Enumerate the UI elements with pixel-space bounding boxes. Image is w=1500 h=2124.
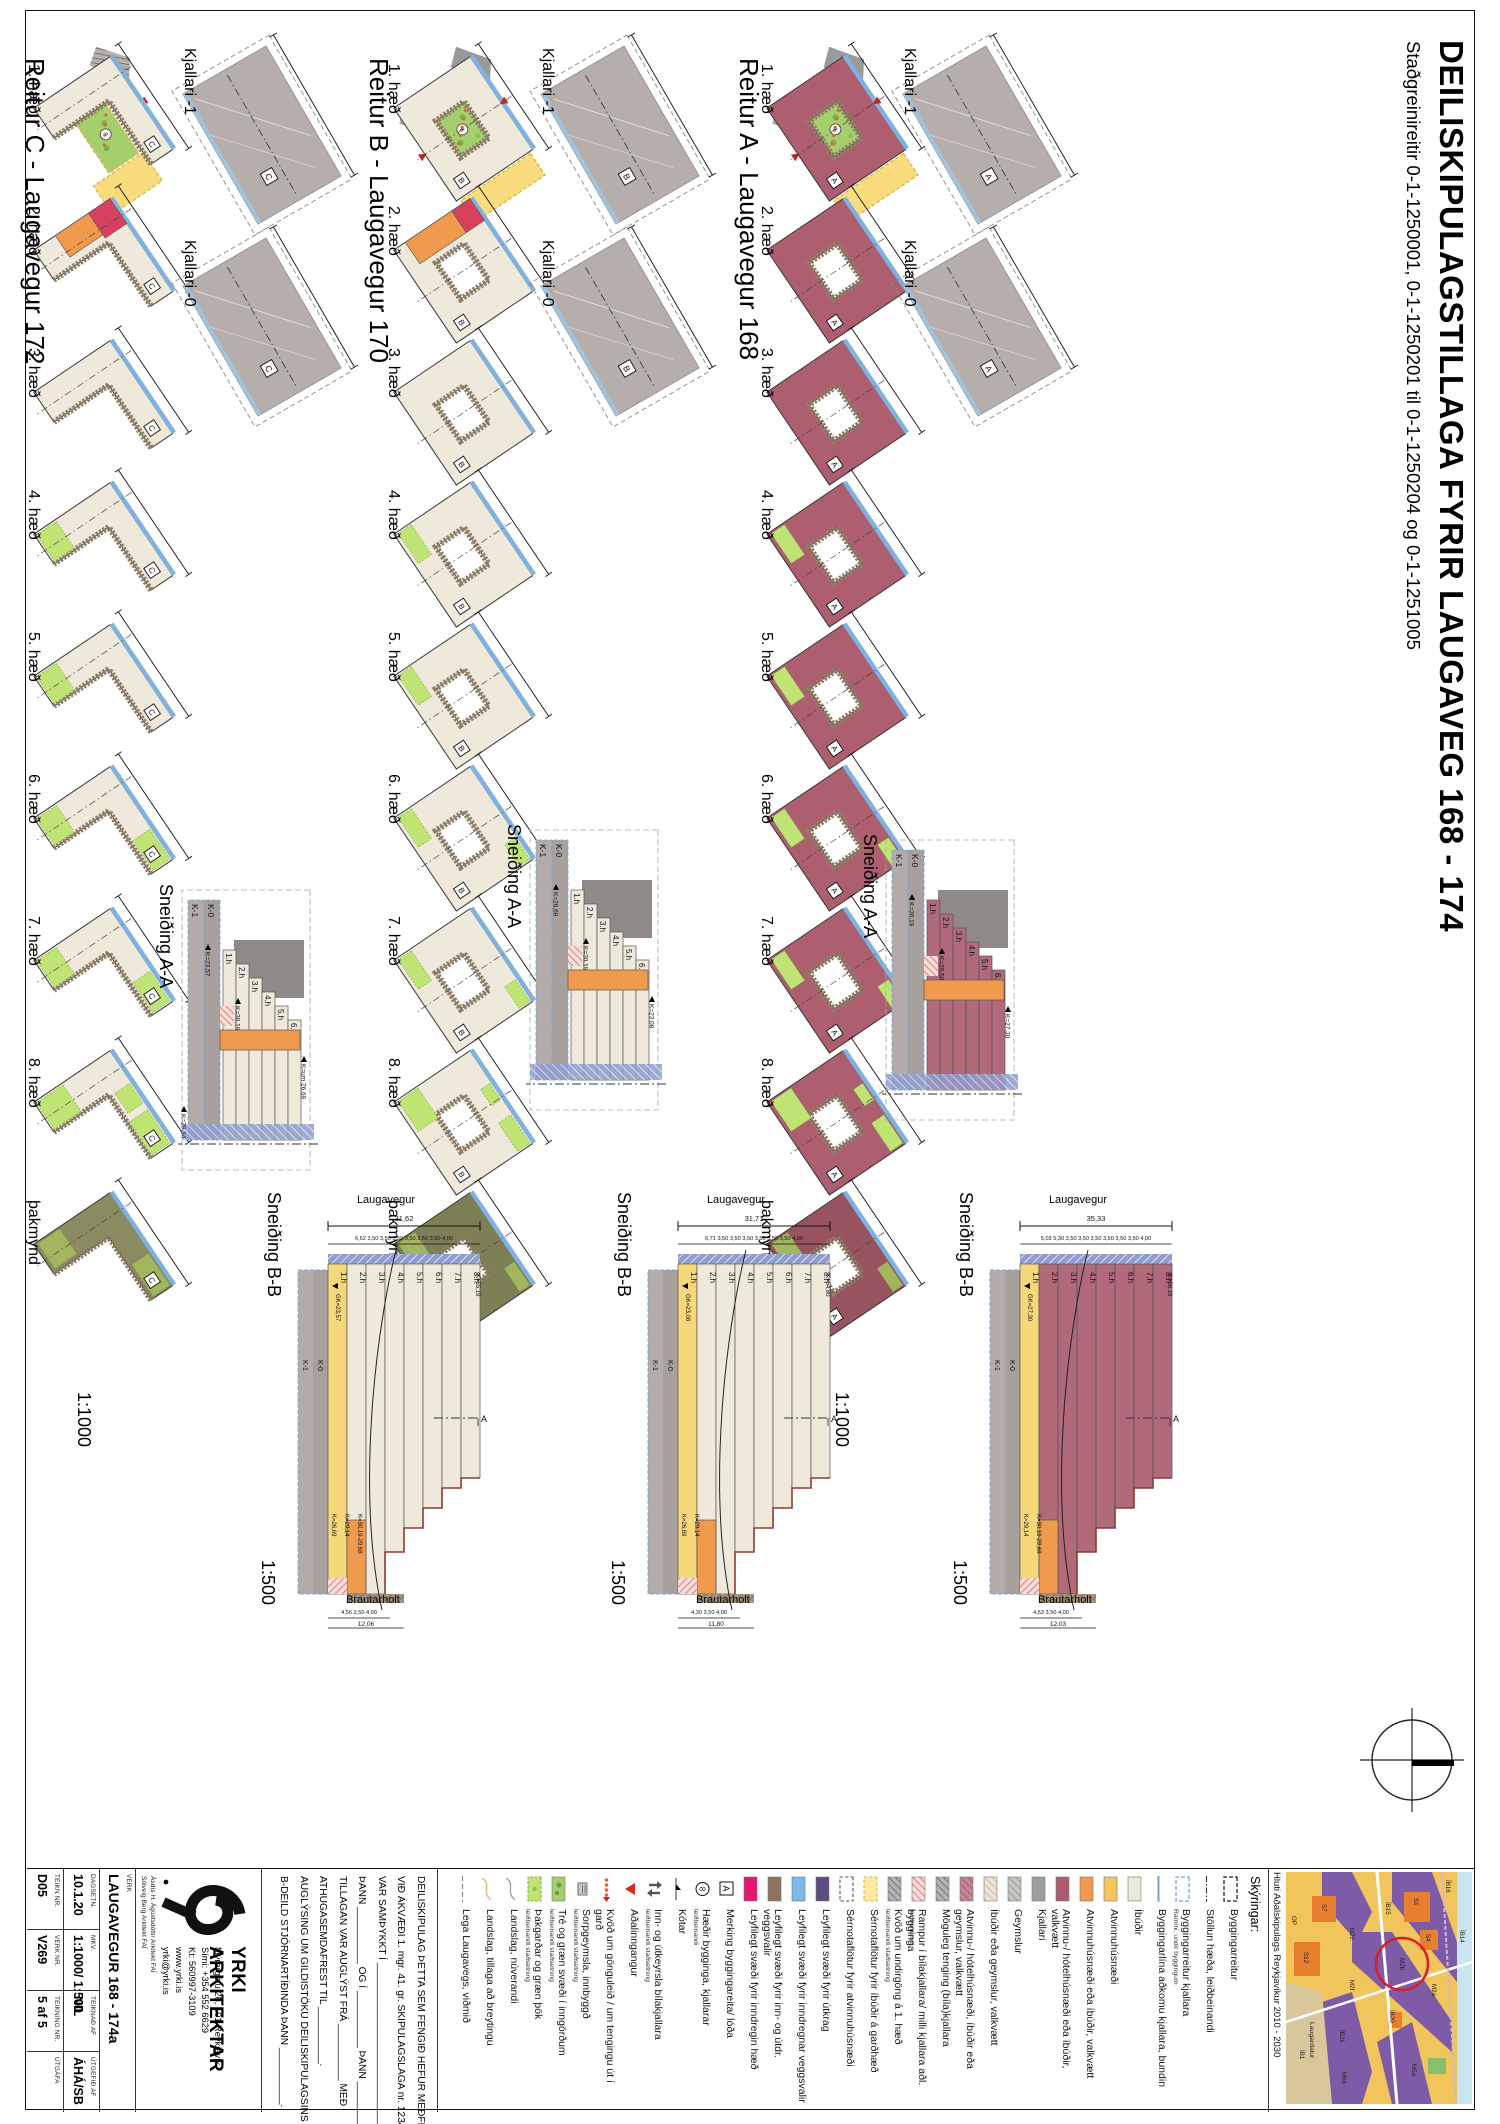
- legend-swatch: [767, 1876, 782, 1902]
- titleblock-divider: [27, 1868, 1475, 1869]
- svg-text:K=um 26,69: K=um 26,69: [300, 1064, 307, 1100]
- plan-label: 6. hæð: [757, 774, 775, 918]
- legend-sublabel: leiðbeinandi staðsetning: [644, 1909, 651, 1982]
- legend-swatch: [1079, 1876, 1094, 1902]
- section-aa: 1.h 2.h 3.h 4.h 5.h 6.h K-1 K-0 K=um 26,…: [155, 880, 334, 1180]
- svg-text:31,71: 31,71: [745, 1214, 764, 1223]
- svg-text:K-0: K-0: [316, 1360, 323, 1371]
- svg-text:K-0: K-0: [206, 904, 216, 918]
- plan-thumbnail: B 3. hæð: [384, 342, 542, 492]
- svg-text:K=26,69: K=26,69: [680, 1514, 686, 1537]
- legend-item: Leyfilegt svæði fyrir inndregin hæð: [737, 1876, 760, 2106]
- svg-text:6,62 3,50 3,50 3,50 3,50: 6,62 3,50 3,50 3,50 3,50 3,50 3,50 4,00: [355, 1236, 453, 1242]
- legend-heading: Skýringar:: [1248, 1876, 1262, 1932]
- plan-thumbnail: B 5. hæð: [384, 626, 542, 776]
- legend-label: Kvöð um undirgöng á 1. hæð: [892, 1909, 903, 2105]
- plan-label: þakmynd: [24, 1200, 42, 1344]
- legend-label: Atvinnu-/ hótelhúsnæði, íbúðir eða geyms…: [953, 1909, 975, 2105]
- svg-text:6,71 3,50 3,50 3,50 3,50: 6,71 3,50 3,50 3,50 3,50 3,50 3,50 4,00: [705, 1236, 803, 1242]
- section-label: Sneiðing B-B: [613, 1192, 634, 1297]
- svg-text:K=26,69: K=26,69: [330, 1514, 336, 1537]
- svg-text:K=30,19: K=30,19: [908, 902, 915, 927]
- legend-item: Kvöð um undirgöng á 1. hæð leiðbeinandi …: [881, 1876, 904, 2106]
- kjallari-thumbnail: B Kjallari -0: [538, 232, 690, 422]
- legend-label: Byggingarlína aðkomu kjallara, bundin: [1156, 1909, 1167, 2105]
- scale-label: 1:500: [607, 1560, 628, 1605]
- legend-label: Kótar: [676, 1909, 687, 2105]
- svg-text:1.h: 1.h: [928, 903, 937, 914]
- legend-item: Leyfilegt svæði fyrir inn- og útdr. vegg…: [761, 1876, 784, 2106]
- field-label: TEIKN NR.: [53, 1874, 60, 1907]
- legend-sublabel: leiðbeinandi staðsetning: [524, 1909, 531, 1982]
- svg-text:K=27,30: K=27,30: [1004, 1014, 1011, 1039]
- svg-text:K=30,19-29,68: K=30,19-29,68: [356, 1514, 362, 1554]
- svg-text:K=26,69: K=26,69: [552, 892, 559, 917]
- legend-label: Atvinnuhúsnæði eða íbúðir, valkvætt: [1084, 1909, 1095, 2105]
- svg-text:8: 8: [698, 1887, 707, 1892]
- legend-item: Byggingarreitur: [1217, 1876, 1240, 2106]
- legend-label: Leyfilegt svæði fyrir inndregnar veggsva…: [796, 1909, 807, 2105]
- street-label: Laugavegur: [636, 1194, 836, 1206]
- legend-item: Atvinnu-/ hótelhúsnæði eða íbúðir, valkv…: [1049, 1876, 1072, 2106]
- svg-text:S4: S4: [1424, 1934, 1431, 1942]
- plan-label: 3. hæð: [24, 348, 42, 492]
- section-aa: 1.h 2.h 3.h 4.h 5.h 6.h K-1 K-0 K=23,08 …: [503, 820, 682, 1120]
- svg-text:K=30,19: K=30,19: [234, 1006, 241, 1031]
- plan-label: 3. hæð: [384, 348, 402, 492]
- legend-item: Stöllun hæða, leiðbeinandi: [1193, 1876, 1216, 2106]
- legend-swatch: [623, 1876, 638, 1902]
- field-value: D05: [35, 1874, 49, 1897]
- legend-swatch: [1055, 1876, 1070, 1902]
- legend-swatch: [959, 1876, 974, 1902]
- section-bb: Laugavegur 35,33 5,03 5,30 3,50 3,50 3,5…: [978, 1190, 1178, 1630]
- approval-line: TILLAGAN VAR AUGLÝST FRÁ __________ MEÐ: [332, 1876, 352, 2106]
- scale-label: 1:1000: [73, 1392, 94, 1447]
- section-bb: Laugavegur 31,62 6,62 3,50 3,50 3,50 3,5…: [286, 1190, 486, 1630]
- svg-text:1.h: 1.h: [224, 953, 233, 964]
- plan-label: 8. hæð: [384, 1058, 402, 1202]
- legend-label: Tré og græn svæði í inngörðum: [556, 1909, 567, 2105]
- plan-label: 1. hæð: [757, 64, 775, 208]
- firm-logo: [158, 1874, 254, 1938]
- plan-label: 4. hæð: [384, 490, 402, 634]
- approval-line: VAR SAMÞYKKT Í _________________________…: [371, 1876, 391, 2124]
- legend-swatch: [647, 1876, 662, 1902]
- field-label: ÚTGÁFA: [53, 2057, 60, 2084]
- plan-label: 7. hæð: [24, 916, 42, 1060]
- plan-label: 6. hæð: [24, 774, 42, 918]
- street-label: Laugavegur: [286, 1194, 486, 1206]
- field-value: 5 af 5: [35, 1996, 49, 2028]
- svg-text:A: A: [721, 1885, 731, 1891]
- svg-text:K=54,80: K=54,80: [824, 1274, 830, 1297]
- section-label: Sneiðing A-A: [503, 824, 524, 1120]
- svg-text:GK=23,08: GK=23,08: [684, 1294, 690, 1322]
- svg-text:S1: S1: [1412, 1898, 1419, 1906]
- legend-item: Íbúðir eða geymslur, valkvætt: [977, 1876, 1000, 2106]
- svg-text:K=30,19-29,68: K=30,19-29,68: [1035, 1514, 1041, 1554]
- svg-text:OP: OP: [1290, 1916, 1297, 1925]
- field-label: TEIKNAÐ AF: [89, 1996, 96, 2035]
- firm-web: www.yrki.is: [172, 1947, 185, 1993]
- svg-text:3.h: 3.h: [954, 931, 963, 942]
- legend-swatch: [575, 1876, 590, 1902]
- street-label: Brautarholt: [1038, 1594, 1092, 1606]
- legend-swatch: [1151, 1876, 1166, 1902]
- plan-thumbnail: A 4. hæð: [757, 484, 915, 634]
- svg-text:2.h: 2.h: [237, 967, 246, 978]
- plan-label: Kjallari -0: [180, 240, 198, 422]
- field-label: DAGSETN.: [89, 1874, 96, 1908]
- svg-text:31,62: 31,62: [395, 1214, 414, 1223]
- legend-label: Landslag, núverandi: [508, 1909, 519, 2105]
- section-label: Sneiðing B-B: [263, 1192, 284, 1297]
- svg-text:K=55,19: K=55,19: [474, 1274, 480, 1297]
- plan-thumbnail: 8 A 1. hæð: [757, 58, 915, 208]
- legend-item: Byggingarlína aðkomu kjallara, bundin: [1145, 1876, 1168, 2106]
- plan-label: 8. hæð: [24, 1058, 42, 1202]
- legend-swatch: [671, 1876, 686, 1902]
- kjallari-thumbnail: C Kjallari -1: [180, 40, 332, 230]
- legend-swatch: [455, 1876, 470, 1902]
- plan-thumbnail: B 2. hæð: [384, 200, 542, 350]
- field-value: ÁHÁ/SB: [71, 2057, 85, 2105]
- legend-sublabel: leiðbeinandi staðsetning: [572, 1909, 579, 1982]
- legend-swatch: [503, 1876, 518, 1902]
- field-label: VERK NR.: [53, 1935, 60, 1967]
- svg-text:K=29,50: K=29,50: [938, 956, 945, 981]
- legend-item: Þakgarðar og græn þök leiðbeinandi staðs…: [521, 1876, 544, 2106]
- field-label: ÚTGEFIÐ AF: [89, 2057, 96, 2097]
- kjallari-thumbnail: C Kjallari -0: [180, 232, 332, 422]
- legend-item: Atvinnu-/ hótelhúsnæði, íbúðir eða geyms…: [953, 1876, 976, 2106]
- legend-sublabel: leiðbeinandi: [908, 1909, 915, 1945]
- plan-label: 7. hæð: [757, 916, 775, 1060]
- svg-text:K-1: K-1: [301, 1360, 308, 1371]
- legend-item: Sérnotaflötur fyrir atvinnuhúsnæði: [833, 1876, 856, 2106]
- legend-swatch: A: [719, 1876, 734, 1902]
- svg-text:K=23,08: K=23,08: [648, 1004, 655, 1029]
- legend-item: Byggingarreitur kjallara Rammi, undir by…: [1169, 1876, 1192, 2106]
- legend-label: Atvinnu-/ hótelhúsnæði eða íbúðir, valkv…: [1049, 1909, 1071, 2105]
- field-label: MKV.: [89, 1935, 96, 1951]
- legend-label: Möguleg tenging (bíla)kjallara: [940, 1909, 951, 2105]
- approval-line: ATHUGASEMDAFREST TIL __________.: [313, 1876, 333, 2066]
- svg-text:K=23,57: K=23,57: [204, 952, 211, 977]
- svg-text:M2c: M2c: [1348, 1928, 1355, 1940]
- legend-swatch: [1175, 1876, 1190, 1902]
- legend-label: Lega Laugavegs, viðmið: [460, 1909, 471, 2105]
- legend-item: Atvinnuhúsnæði: [1097, 1876, 1120, 2106]
- svg-text:M6b: M6b: [1340, 2072, 1347, 2085]
- svg-text:5,03 5,30 3,50 3,50 3,50: 5,03 5,30 3,50 3,50 3,50 3,50 3,50 3,50 …: [1041, 1236, 1151, 1242]
- legend-swatch: [527, 1876, 542, 1902]
- svg-text:5.h: 5.h: [980, 959, 989, 970]
- plan-label: 4. hæð: [757, 490, 775, 634]
- svg-text:M2a: M2a: [1430, 1984, 1437, 1997]
- plan-thumbnail: C 4. hæð: [24, 484, 182, 634]
- legend-item: Landslag, núverandi: [497, 1876, 520, 2106]
- plan-label: Kjallari -1: [900, 48, 918, 230]
- legend-item: Inn- og útkeyrsla bílakjallara leiðbeina…: [641, 1876, 664, 2106]
- legend-label: Íbúðir: [1132, 1909, 1143, 2105]
- plan-label: 2. hæð: [384, 206, 402, 350]
- legend-swatch: [551, 1876, 566, 1902]
- field-label: VERK: [125, 1874, 132, 1892]
- approval-line: ÞANN __________ OG Í __________ ÞANN ___…: [352, 1876, 372, 2124]
- svg-text:5.h: 5.h: [276, 1009, 285, 1020]
- legend-swatch: [839, 1876, 854, 1902]
- svg-text:3.h: 3.h: [598, 921, 607, 932]
- svg-text:K-1: K-1: [894, 854, 904, 868]
- svg-text:K-0: K-0: [1008, 1360, 1015, 1371]
- svg-text:K=29,14: K=29,14: [180, 1114, 187, 1139]
- svg-text:ÍB16: ÍB16: [1444, 1880, 1451, 1893]
- svg-text:4,53 3,50 4,00: 4,53 3,50 4,00: [1033, 1610, 1069, 1616]
- legend-swatch: [479, 1876, 494, 1902]
- plan-label: 5. hæð: [24, 632, 42, 776]
- approval-line: AUGLÝSING UM GILDISTÖKU DEILISKIPULAGSIN…: [293, 1876, 313, 2124]
- section-bb: Laugavegur 31,71 6,71 3,50 3,50 3,50 3,5…: [636, 1190, 836, 1630]
- legend-label: Leyfilegt svæði fyrir inndregin hæð: [748, 1909, 759, 2105]
- svg-text:K=29,14: K=29,14: [693, 1514, 699, 1537]
- legend-swatch: [1103, 1876, 1118, 1902]
- plan-thumbnail: B 4. hæð: [384, 484, 542, 634]
- legend-label: Sérnotaflötur fyrir atvinnuhúsnæði: [844, 1909, 855, 2105]
- svg-text:K=29,14: K=29,14: [1022, 1514, 1028, 1537]
- legend-swatch: [887, 1876, 902, 1902]
- svg-text:2.h: 2.h: [941, 917, 950, 928]
- svg-text:A: A: [481, 1414, 487, 1424]
- legend-swatch: [1127, 1876, 1142, 1902]
- approval-line: DEILISKIPULAG ÞETTA SEM FENGIÐ HEFUR MEÐ…: [410, 1876, 430, 2124]
- legend-item: Atvinnuhúsnæði eða íbúðir, valkvætt: [1073, 1876, 1096, 2106]
- plan-label: 7. hæð: [384, 916, 402, 1060]
- firm-email: yrki@yrki.is: [159, 1947, 172, 1995]
- page-subtitle: Staðgreinireitir 0-1-1250001, 0-1-125020…: [1402, 41, 1424, 650]
- legend-swatch: [1007, 1876, 1022, 1902]
- svg-text:4,56 3,50 4,00: 4,56 3,50 4,00: [341, 1610, 377, 1616]
- svg-text:K-1: K-1: [190, 904, 200, 918]
- svg-text:A: A: [1173, 1414, 1179, 1424]
- legend-label: Leyfilegt svæði fyrir inn- og útdr. vegg…: [761, 1909, 783, 2105]
- legend-sublabel: leiðbeinandi: [692, 1909, 699, 1945]
- firm-architect: Ásdís H. Ágústsdóttir Arkitekt FAÍ: [149, 1876, 156, 1973]
- section-label: Sneiðing A-A: [155, 884, 176, 1180]
- legend-label: Inn- og útkeyrsla bílakjallara: [652, 1909, 663, 2105]
- svg-text:ÍB21: ÍB21: [1338, 2030, 1345, 2043]
- legend-swatch: [815, 1876, 830, 1902]
- field-value: V269: [35, 1935, 49, 1964]
- plan-thumbnail: C 3. hæð: [24, 342, 182, 492]
- svg-text:4.h: 4.h: [611, 935, 620, 946]
- legend-item: Sorpgeymsla, innbyggð leiðbeinandi staðs…: [569, 1876, 592, 2106]
- kjallari-thumbnail: B Kjallari -1: [538, 40, 690, 230]
- svg-text:ÍB20: ÍB20: [1388, 2010, 1395, 2023]
- legend-item: Rampur í bílakjallara/ milli kjallara að…: [905, 1876, 928, 2106]
- svg-text:GK=23,57: GK=23,57: [334, 1294, 340, 1322]
- svg-text:M2b: M2b: [1398, 1958, 1405, 1971]
- legend-item: 8 Hæðir bygginga, kjallarar leiðbeinandi: [689, 1876, 712, 2106]
- svg-text:K=29,14: K=29,14: [343, 1514, 349, 1537]
- field-value: 10.1.20: [71, 1874, 85, 1916]
- svg-text:M5a: M5a: [1410, 2064, 1417, 2077]
- north-arrow-icon: [1360, 1705, 1470, 1815]
- legend-item: Aðalinngangur: [617, 1876, 640, 2106]
- plan-thumbnail: A 3. hæð: [757, 342, 915, 492]
- plan-label: Kjallari -0: [538, 240, 556, 422]
- legend-item: Kótar: [665, 1876, 688, 2106]
- svg-text:K-1: K-1: [538, 844, 548, 858]
- plan-label: 4. hæð: [24, 490, 42, 634]
- legend-label: Merking byggingareita/ lóða: [724, 1909, 735, 2105]
- legend-item: Möguleg tenging (bíla)kjallara: [929, 1876, 952, 2106]
- firm-phone: Sími: +354 552 6629: [198, 1947, 211, 2033]
- plan-label: Kjallari -1: [538, 48, 556, 230]
- legend-sublabel: leiðbeinandi staðsetning: [884, 1909, 891, 1982]
- svg-text:4,30 3,50 4,00: 4,30 3,50 4,00: [691, 1610, 727, 1616]
- firm-architect: Sólveig Berg Arkitekt FAÍ: [140, 1876, 147, 1949]
- plan-thumbnail: 8 C 1. hæð: [24, 58, 182, 208]
- svg-text:GK=27,30: GK=27,30: [1026, 1294, 1032, 1322]
- legend-label: Kvöð um gönguleið / um tengingu út í gar…: [593, 1909, 615, 2105]
- plan-label: 1. hæð: [384, 64, 402, 208]
- map-caption: Hluti Aðalskipulags Reykjavíkur 2010 - 2…: [1271, 1872, 1282, 2057]
- svg-text:K=56,19: K=56,19: [1166, 1274, 1172, 1297]
- svg-text:Laugardalur: Laugardalur: [1308, 2022, 1315, 2059]
- section-label: Sneiðing A-A: [859, 834, 880, 1130]
- legend-item: A Merking byggingareita/ lóða: [713, 1876, 736, 2106]
- svg-text:A: A: [831, 1414, 837, 1424]
- plan-label: Kjallari -1: [180, 48, 198, 230]
- plan-label: 6. hæð: [384, 774, 402, 918]
- kjallari-thumbnail: A Kjallari -1: [900, 40, 1052, 230]
- legend-item: Sérnotaflötur fyrir íbúðir á garðhæð: [857, 1876, 880, 2106]
- legend-label: Atvinnuhúsnæði: [1108, 1909, 1119, 2105]
- legend-label: Byggingarreitur kjallara: [1180, 1909, 1191, 2105]
- svg-text:11,80: 11,80: [708, 1621, 724, 1628]
- svg-text:4.h: 4.h: [263, 995, 272, 1006]
- svg-text:K-1: K-1: [651, 1360, 658, 1371]
- svg-text:1.h: 1.h: [572, 893, 581, 904]
- legend-label: Stöllun hæða, leiðbeinandi: [1204, 1909, 1215, 2105]
- svg-text:5.h: 5.h: [624, 949, 633, 960]
- legend-swatch: [911, 1876, 926, 1902]
- field-label: TEIKNING NR.: [53, 1996, 60, 2041]
- legend-item: Kvöð um gönguleið / um tengingu út í gar…: [593, 1876, 616, 2106]
- legend-swatch: [791, 1876, 806, 1902]
- plan-label: 2. hæð: [757, 206, 775, 350]
- legend-label: Geymslur: [1012, 1909, 1023, 2105]
- plan-label: 5. hæð: [384, 632, 402, 776]
- legend-label: Sorpgeymsla, innbyggð: [580, 1909, 591, 2105]
- plan-thumbnail: A 5. hæð: [757, 626, 915, 776]
- firm-kt: Kt: 560997-3109: [185, 1947, 198, 2016]
- plan-thumbnail: C þakmynd: [24, 1194, 182, 1344]
- street-label: Brautarholt: [696, 1594, 750, 1606]
- legend-item: Landslag, tillaga að breytingu: [473, 1876, 496, 2106]
- legend-label: Hæðir bygginga, kjallarar: [700, 1909, 711, 2105]
- legend-label: Byggingarreitur: [1228, 1909, 1239, 2105]
- plan-thumbnail: 8 B 1. hæð: [384, 58, 542, 208]
- svg-text:S12: S12: [1302, 1952, 1309, 1964]
- legend-label: Landslag, tillaga að breytingu: [484, 1909, 495, 2105]
- kjallari-thumbnail: A Kjallari -0: [900, 232, 1052, 422]
- svg-text:4.h: 4.h: [967, 945, 976, 956]
- legend-label: Þakgarðar og græn þök: [532, 1909, 543, 2105]
- svg-text:ÍB1: ÍB1: [1298, 2050, 1305, 2060]
- legend-swatch: [983, 1876, 998, 1902]
- svg-text:ÍB14: ÍB14: [1458, 1930, 1465, 1943]
- legend-swatch: [935, 1876, 950, 1902]
- firm-address: Mýrargötu 26, 101 Reykjavík: [211, 1947, 224, 2065]
- plan-label: 1. hæð: [24, 64, 42, 208]
- plan-label: 2. hæð: [24, 206, 42, 350]
- legend-label: Leyfilegt svæði fyrir útkrag: [820, 1909, 831, 2105]
- street-label: Brautarholt: [346, 1594, 400, 1606]
- legend-swatch: [863, 1876, 878, 1902]
- legend-sublabel: Rammi, undir byggingum: [1172, 1909, 1179, 1985]
- screenshot-stage: DEILISKIPULAGSTILLAGA FYRIR LAUGAVEG 168…: [0, 0, 1500, 2124]
- scale-label: 1:500: [949, 1560, 970, 1605]
- legend-swatch: 8: [695, 1876, 710, 1902]
- approval-line: B-DEILD STJÓRNARTÍÐINDA ÞANN __________.: [274, 1876, 294, 2107]
- legend-item: Kjallari: [1025, 1876, 1048, 2106]
- svg-text:12,06: 12,06: [358, 1621, 375, 1628]
- svg-text:3.h: 3.h: [250, 981, 259, 992]
- legend-item: Íbúðir: [1121, 1876, 1144, 2106]
- svg-text:K-0: K-0: [554, 844, 564, 858]
- legend-label: Íbúðir eða geymslur, valkvætt: [988, 1909, 999, 2105]
- page-title: DEILISKIPULAGSTILLAGA FYRIR LAUGAVEG 168…: [1432, 40, 1470, 932]
- legend-swatch: [1199, 1876, 1214, 1902]
- legend-label: Aðalinngangur: [628, 1909, 639, 2105]
- plan-label: 5. hæð: [757, 632, 775, 776]
- field-value: LAUGAVEGUR 168 - 174a: [106, 1874, 122, 2043]
- legend-item: Geymslur: [1001, 1876, 1024, 2106]
- section-aa: 1.h 2.h 3.h 4.h 5.h 6.h K-1 K-0 K=27,30 …: [859, 830, 1038, 1130]
- zoning-map-inset: M2aM2b M2cM2f M5aM6b S1S4 S7S12 ÍB14ÍB15…: [1286, 1872, 1472, 2104]
- svg-text:K=30,19: K=30,19: [582, 946, 589, 971]
- plan-thumbnail: A 2. hæð: [757, 200, 915, 350]
- svg-text:ÍB15: ÍB15: [1384, 1902, 1391, 1915]
- svg-text:35,33: 35,33: [1087, 1214, 1106, 1223]
- field-value: NIL: [71, 1996, 85, 2016]
- legend-label: Kjallari: [1036, 1909, 1047, 2105]
- plan-label: 8. hæð: [757, 1058, 775, 1202]
- legend-sublabel: leiðbeinandi staðsetning: [548, 1909, 555, 1982]
- legend-swatch: [1031, 1876, 1046, 1902]
- legend-swatch: [743, 1876, 758, 1902]
- svg-text:K-1: K-1: [993, 1360, 1000, 1371]
- legend-item: Leyfilegt svæði fyrir inndregnar veggsva…: [785, 1876, 808, 2106]
- legend-swatch: [1223, 1876, 1238, 1902]
- legend-label: Sérnotaflötur fyrir íbúðir á garðhæð: [868, 1909, 879, 2105]
- legend-item: Leyfilegt svæði fyrir útkrag: [809, 1876, 832, 2106]
- legend-item: Lega Laugavegs, viðmið: [449, 1876, 472, 2106]
- legend-item: Tré og græn svæði í inngörðum leiðbeinan…: [545, 1876, 568, 2106]
- plan-label: 3. hæð: [757, 348, 775, 492]
- plan-sheet: DEILISKIPULAGSTILLAGA FYRIR LAUGAVEG 168…: [0, 0, 1500, 2124]
- plan-thumbnail: C 2. hæð: [24, 200, 182, 350]
- street-label: Laugavegur: [978, 1194, 1178, 1206]
- legend-swatch: [599, 1876, 614, 1902]
- svg-text:12,03: 12,03: [1050, 1621, 1067, 1628]
- svg-text:S7: S7: [1320, 1904, 1327, 1912]
- approval-line: VIÐ ÁKVÆÐI 1. mgr. 41. gr. SKIPULAGSLAGA…: [391, 1876, 411, 2124]
- plan-thumbnail: C 5. hæð: [24, 626, 182, 776]
